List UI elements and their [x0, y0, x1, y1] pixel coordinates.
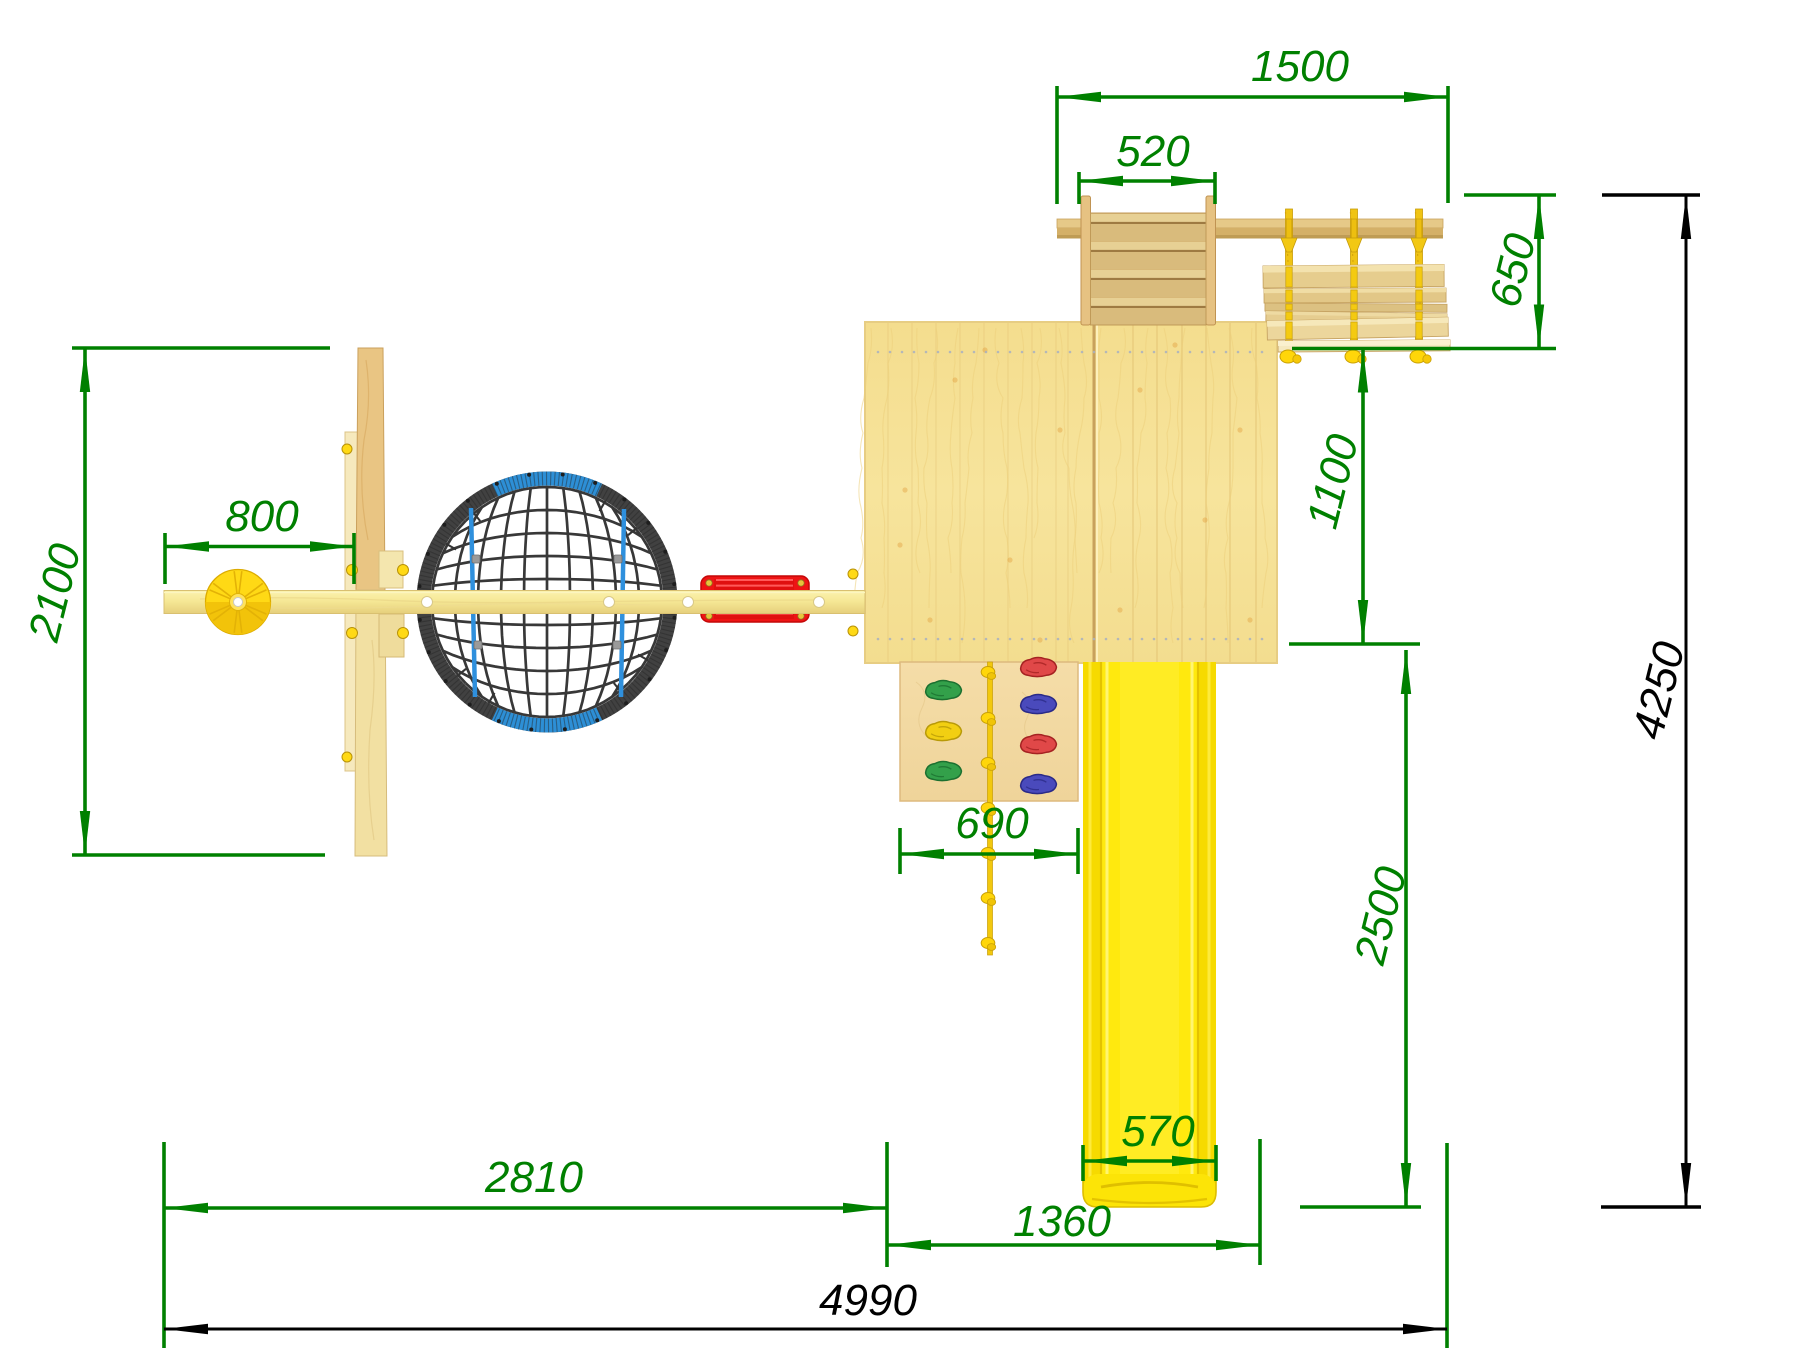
svg-text:690: 690 — [955, 799, 1029, 848]
svg-text:4990: 4990 — [819, 1276, 917, 1325]
svg-text:2810: 2810 — [484, 1153, 583, 1202]
svg-text:1500: 1500 — [1251, 42, 1349, 91]
svg-text:520: 520 — [1116, 127, 1190, 176]
svg-text:1360: 1360 — [1013, 1197, 1111, 1246]
svg-text:570: 570 — [1121, 1107, 1195, 1156]
svg-text:800: 800 — [225, 492, 299, 541]
